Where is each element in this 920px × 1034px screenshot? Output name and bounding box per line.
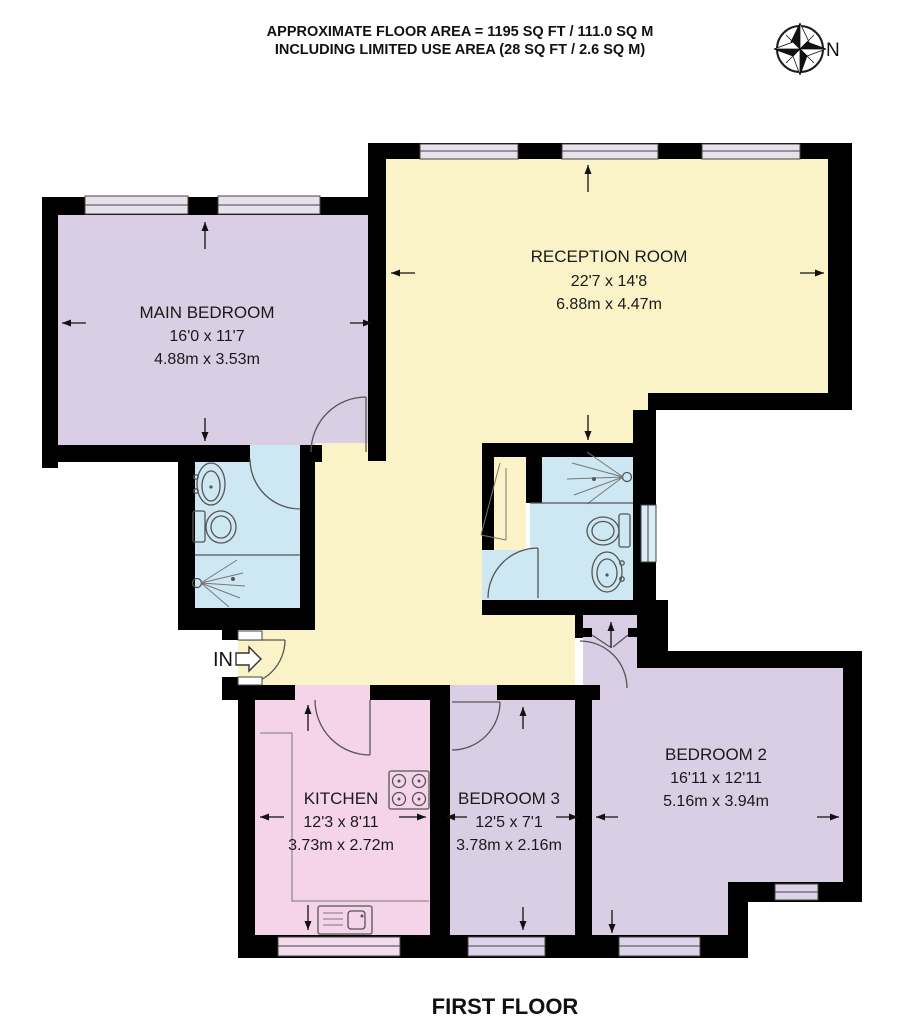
svg-text:4.88m x 3.53m: 4.88m x 3.53m (154, 351, 260, 368)
door-jamb (238, 677, 262, 685)
svg-text:16'0 x 11'7: 16'0 x 11'7 (169, 328, 244, 345)
ensuite-door-gap (250, 445, 300, 462)
room-ensuite-bathroom (195, 461, 300, 608)
svg-text:22'7 x 14'8: 22'7 x 14'8 (571, 273, 647, 290)
door-jamb (238, 631, 262, 640)
bedroom-3-door-gap (450, 685, 497, 700)
header-line-2: INCLUDING LIMITED USE AREA (28 SQ FT / 2… (275, 42, 645, 58)
svg-text:BEDROOM 2: BEDROOM 2 (665, 745, 767, 764)
bedroom-2-vestibule (583, 615, 637, 695)
svg-text:3.78m x 2.16m: 3.78m x 2.16m (456, 837, 562, 854)
svg-text:KITCHEN: KITCHEN (304, 789, 379, 808)
svg-text:3.73m x 2.72m: 3.73m x 2.72m (288, 837, 394, 854)
svg-text:RECEPTION ROOM: RECEPTION ROOM (531, 247, 688, 266)
svg-text:MAIN BEDROOM: MAIN BEDROOM (139, 303, 274, 322)
room-fills (58, 159, 843, 940)
entrance-label: IN (213, 649, 233, 671)
kitchen-door-gap (295, 685, 370, 700)
window (775, 884, 818, 900)
window (218, 196, 320, 214)
svg-text:5.16m x 3.94m: 5.16m x 3.94m (663, 793, 769, 810)
svg-text:16'11 x 12'11: 16'11 x 12'11 (670, 770, 762, 787)
svg-text:12'5 x 7'1: 12'5 x 7'1 (475, 814, 543, 831)
window (641, 505, 656, 562)
header-line-1: APPROXIMATE FLOOR AREA = 1195 SQ FT / 11… (267, 24, 654, 40)
svg-text:BEDROOM 3: BEDROOM 3 (458, 789, 560, 808)
hallway (315, 443, 482, 685)
label-kitchen: KITCHEN 12'3 x 8'11 3.73m x 2.72m (288, 789, 394, 854)
cupboard (494, 457, 526, 550)
window (619, 937, 700, 956)
floorplan-canvas: APPROXIMATE FLOOR AREA = 1195 SQ FT / 11… (0, 0, 920, 1034)
window (278, 937, 400, 956)
svg-text:12'3 x 8'11: 12'3 x 8'11 (303, 814, 378, 831)
label-bedroom-2: BEDROOM 2 16'11 x 12'11 5.16m x 3.94m (663, 745, 769, 810)
window (468, 937, 545, 956)
floor-title: FIRST FLOOR (432, 994, 579, 1019)
compass-icon: N (774, 23, 840, 75)
window (420, 144, 518, 159)
svg-text:6.88m x 4.47m: 6.88m x 4.47m (556, 296, 662, 313)
window (702, 144, 800, 159)
hallway-east (482, 615, 575, 685)
floor-area-header: APPROXIMATE FLOOR AREA = 1195 SQ FT / 11… (267, 24, 654, 58)
window (562, 144, 658, 159)
window (85, 196, 188, 214)
compass-north-label: N (826, 40, 840, 61)
bathroom-entry-nook (482, 550, 530, 600)
